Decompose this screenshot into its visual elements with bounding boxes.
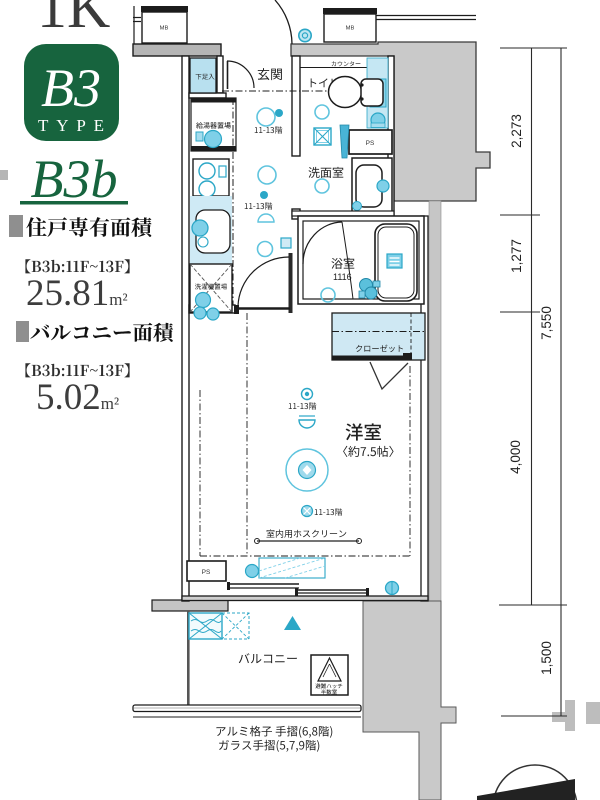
svg-text:1116: 1116 <box>333 272 352 282</box>
svg-text:PS: PS <box>366 140 375 147</box>
svg-text:MB: MB <box>160 26 169 32</box>
svg-text:4,000: 4,000 <box>508 440 523 474</box>
svg-text:PS: PS <box>202 569 211 576</box>
svg-text:1K: 1K <box>37 0 110 40</box>
svg-text:B3: B3 <box>41 58 101 118</box>
svg-text:1,500: 1,500 <box>539 641 554 675</box>
svg-text:7,550: 7,550 <box>539 306 554 340</box>
svg-text:B3b: B3b <box>31 149 118 209</box>
svg-text:MB: MB <box>346 26 355 32</box>
svg-text:2,273: 2,273 <box>509 114 524 148</box>
svg-text:1,277: 1,277 <box>509 239 524 273</box>
